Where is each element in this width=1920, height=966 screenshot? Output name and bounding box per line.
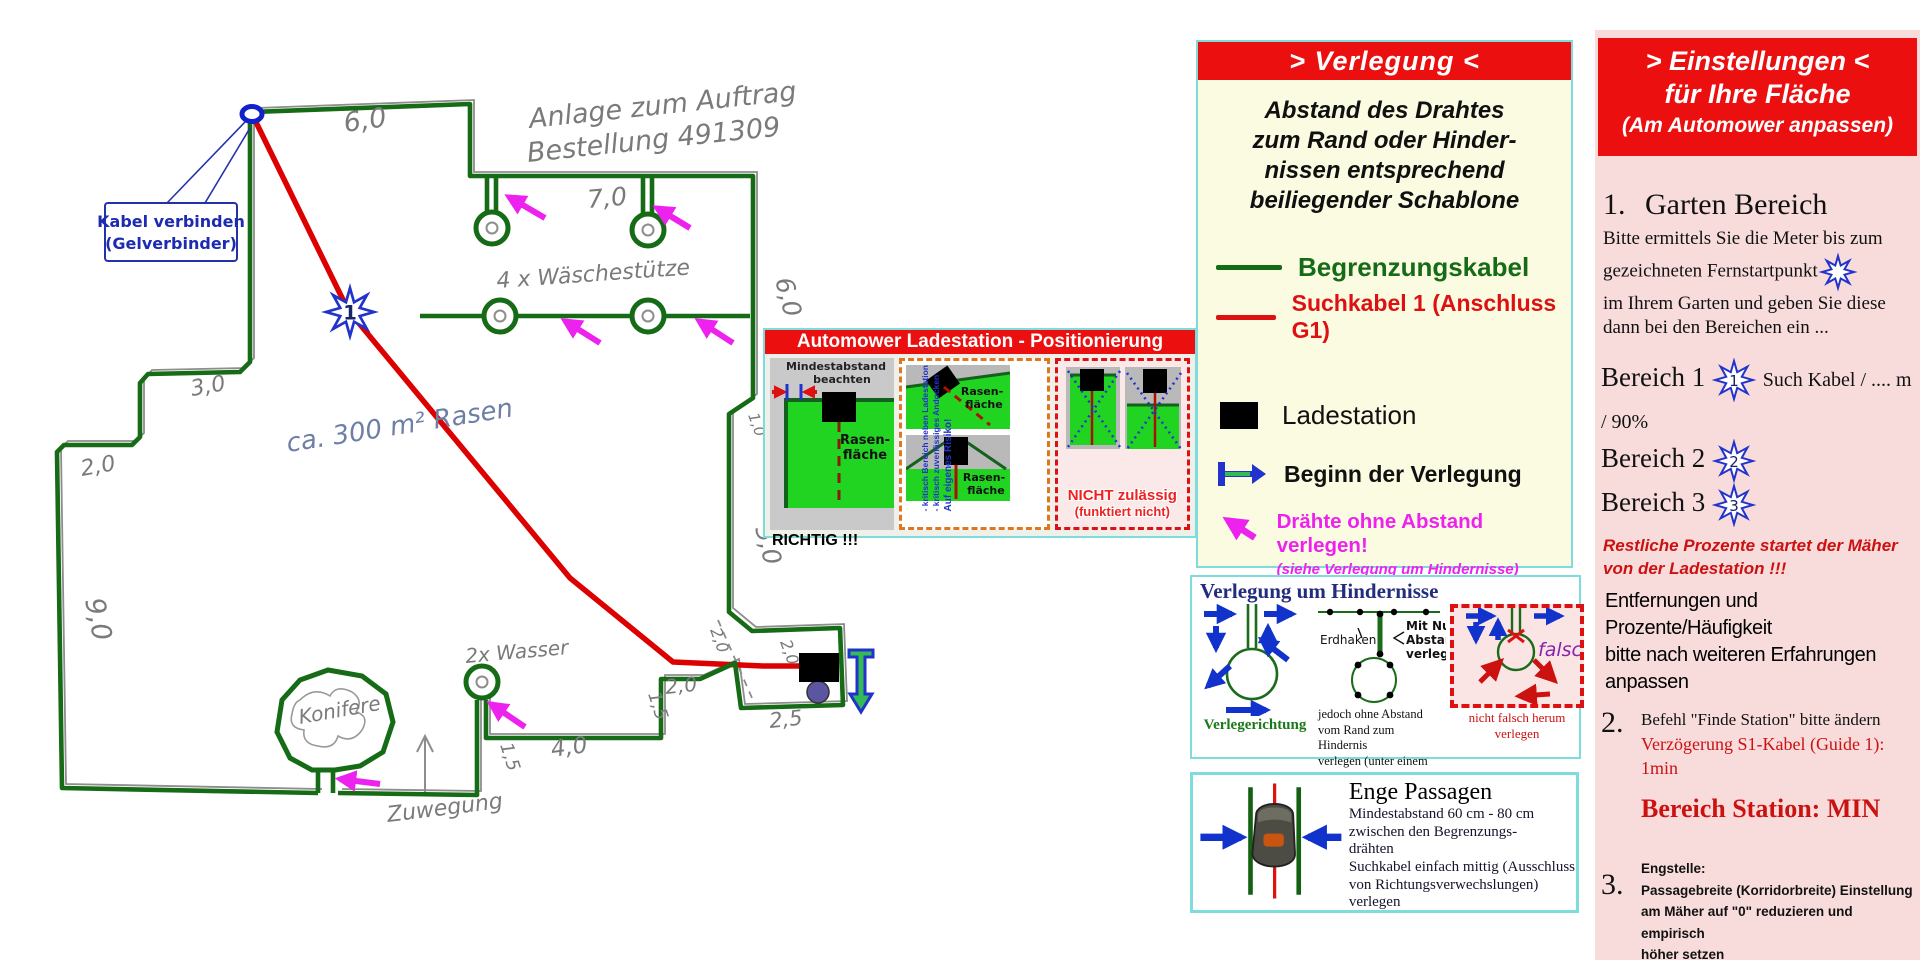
bereich3-label: Bereich 3 xyxy=(1601,487,1705,517)
wrong-caption: nicht falsch herum verlegen xyxy=(1450,710,1584,741)
settings-title-1: > Einstellungen < xyxy=(1598,46,1917,77)
obstacles-panel-title: Verlegung um Hindernisse xyxy=(1200,579,1579,604)
item1-title: Garten Bereich xyxy=(1645,188,1827,221)
legend-nogap-label: Drähte ohne Abstand verlegen! xyxy=(1277,510,1571,558)
m-right-upper: 6,0 xyxy=(769,274,807,320)
item3-number: 3. xyxy=(1601,868,1624,902)
station-knob xyxy=(807,681,829,703)
m-left-side: 9,0 xyxy=(78,595,117,643)
m-left-step-upper: 3,0 xyxy=(189,371,228,402)
obstacle-wrong-figure: falsch nicht falsch herum verlegen xyxy=(1450,604,1584,785)
narrow-passages-panel: Enge Passagen Mindestabstand 60 cm - 80 … xyxy=(1190,772,1579,913)
bereich2-star: 2 xyxy=(1712,439,1756,483)
forbidden-verdict-2: (funktiert nicht) xyxy=(1058,504,1187,519)
narrow-passage-line4: Suchkabel einfach mittig (Ausschluss xyxy=(1349,859,1576,877)
zero-gap-caption-2: vom Rand zum Hindernis xyxy=(1318,723,1446,754)
positioning-panel: Automower Ladestation - Positionierung M… xyxy=(763,328,1197,538)
item3-line1: Engstelle: xyxy=(1641,858,1920,880)
item1-number: 1. xyxy=(1603,188,1626,221)
wrong-caption-2: verlegen xyxy=(1450,726,1584,742)
callout-line2: (Gelverbinder) xyxy=(105,234,237,253)
fernstart-star xyxy=(1818,252,1858,292)
item1-line4: dann bei den Bereichen ein ... xyxy=(1603,316,1886,341)
item2-number: 2. xyxy=(1601,706,1624,740)
intro-line-1: Abstand des Drahtes xyxy=(1198,96,1571,126)
bereich1-star: 1 xyxy=(1712,358,1756,402)
bereich1-row: Bereich 1 1 Such Kabel / .... m / 90% xyxy=(1601,358,1920,439)
settings-title-2: für Ihre Fläche xyxy=(1598,79,1917,110)
forbidden-figure-2 xyxy=(1123,367,1183,453)
adjust-note: Entfernungen und Prozente/Häufigkeit bit… xyxy=(1605,588,1920,696)
positioning-risky-diagrams: Rasen- fläche Rasen- fläche - kritisch B… xyxy=(899,358,1050,530)
note-line2: bitte nach weiteren Erfahrungen anpassen xyxy=(1605,642,1920,696)
erdhaken-label: Erdhaken xyxy=(1320,633,1376,647)
callout-line1: Kabel verbinden xyxy=(97,212,245,231)
obstacle-zero-gap-figure: Erdhaken Mit Null Abstand verlegen jedoc… xyxy=(1318,604,1446,785)
intro-line-4: beiliegender Schablone xyxy=(1198,186,1571,216)
narrow-passage-line2: zwischen den Begrenzungs- xyxy=(1349,824,1576,842)
legend-guide-row: Suchkabel 1 (Anschluss G1) xyxy=(1216,290,1571,344)
automower-installation-sheet: { "plan": { "order_note_line1": "Anlage … xyxy=(0,0,1920,960)
item1-line2: gezeichneten Fernstartpunkt xyxy=(1603,260,1818,281)
note-line1: Entfernungen und Prozente/Häufigkeit xyxy=(1605,588,1920,642)
obstacles-panel: Verlegung um Hindernisse Verlegerichtung xyxy=(1190,575,1581,759)
bereich2-row: Bereich 2 2 xyxy=(1601,439,1920,483)
obstacle-direction-figure: Verlegerichtung xyxy=(1196,604,1314,785)
water-point-loop xyxy=(466,666,498,698)
bereich-list: Bereich 1 1 Such Kabel / .... m / 90% Be… xyxy=(1601,358,1920,527)
narrow-passage-line1: Mindestabstand 60 cm - 80 cm xyxy=(1349,806,1576,824)
forbidden-verdict: NICHT zulässig (funktiert nicht) xyxy=(1058,487,1187,519)
positioning-panel-title: Automower Ladestation - Positionierung xyxy=(765,330,1195,354)
mower-image xyxy=(1252,804,1295,867)
handwritten-notes: Anlage zum Auftrag Bestellung 491309 ca.… xyxy=(284,76,797,828)
north-arrow xyxy=(417,736,433,792)
narrow-passage-title: Enge Passagen xyxy=(1349,779,1576,806)
m-near-station-h: 2,0 xyxy=(664,672,698,699)
no-gap-arrow-icon xyxy=(1216,510,1261,544)
legend-guide-label: Suchkabel 1 (Anschluss G1) xyxy=(1292,290,1571,344)
begin-arrow xyxy=(849,650,873,712)
clothesline-label: 4 x Wäschestütze xyxy=(496,256,691,294)
legend-boundary-row: Begrenzungskabel xyxy=(1216,252,1529,283)
legend-begin-label: Beginn der Verlegung xyxy=(1284,461,1522,488)
bereich2-label: Bereich 2 xyxy=(1601,443,1705,473)
legend-begin-row: Beginn der Verlegung xyxy=(1216,460,1522,488)
charging-station xyxy=(799,653,839,682)
settings-panel: > Einstellungen < für Ihre Fläche (Am Au… xyxy=(1595,30,1920,960)
station-setting: Bereich Station: MIN xyxy=(1641,794,1880,824)
m-top: 6,0 xyxy=(342,102,389,139)
lawn-label-1: Rasen- xyxy=(840,433,890,448)
boundary-line-icon xyxy=(1216,265,1282,270)
start-point-star: 1 xyxy=(326,288,374,336)
m-passage-v1: 1,5 xyxy=(495,740,524,774)
falsch-label: falsch xyxy=(1538,639,1580,661)
correct-verdict: RICHTIG !!! xyxy=(772,532,858,550)
item2-text: Befehl "Finde Station" bitte ändern Verz… xyxy=(1641,709,1920,781)
min-distance-note-2: beachten xyxy=(813,373,871,386)
start-point-number: 1 xyxy=(343,302,357,325)
m-left-step-lower: 2,0 xyxy=(79,451,118,482)
mit-null-1: Mit Null xyxy=(1406,619,1446,633)
area-note: ca. 300 m² Rasen xyxy=(284,394,515,459)
mit-null-2: Abstand xyxy=(1406,633,1446,647)
item3-line2: Passagebreite (Korridorbreite) Einstellu… xyxy=(1641,880,1920,902)
lawn-label-2: fläche xyxy=(843,448,887,463)
settings-title-3: (Am Automower anpassen) xyxy=(1598,114,1917,138)
item3-line3: am Mäher auf "0" reduzieren und empirisc… xyxy=(1641,901,1920,944)
min-distance-note-1: Mindestabstand xyxy=(786,360,886,373)
forbidden-verdict-1: NICHT zulässig xyxy=(1058,487,1187,504)
tree-loop xyxy=(277,670,393,793)
legend-station-row: Ladestation xyxy=(1216,400,1416,431)
bereich3-row: Bereich 3 3 xyxy=(1601,483,1920,527)
m-near-station-r2: 2,0 xyxy=(776,637,803,667)
intro-line-3: nissen entsprechend xyxy=(1198,156,1571,186)
guide-line-icon xyxy=(1216,315,1276,320)
item1-line3: im Ihrem Garten und geben Sie diese xyxy=(1603,292,1886,317)
bereich1-star-number: 1 xyxy=(1729,372,1739,390)
narrow-passage-text: Enge Passagen Mindestabstand 60 cm - 80 … xyxy=(1349,775,1576,912)
cable-connect-callout: Kabel verbinden (Gelverbinder) xyxy=(97,107,262,262)
bereich3-star: 3 xyxy=(1712,483,1756,527)
item2-line1: Befehl "Finde Station" bitte ändern xyxy=(1641,709,1920,732)
bereich3-star-number: 3 xyxy=(1729,497,1739,515)
connect-point xyxy=(242,107,262,122)
laying-legend-panel: > Verlegung < Abstand des Drahtes zum Ra… xyxy=(1196,40,1573,568)
settings-panel-header: > Einstellungen < für Ihre Fläche (Am Au… xyxy=(1598,38,1917,156)
bereich1-label: Bereich 1 xyxy=(1601,362,1705,392)
laying-intro: Abstand des Drahtes zum Rand oder Hinder… xyxy=(1198,96,1571,216)
station-icon xyxy=(1220,402,1258,429)
guide-cable xyxy=(252,114,802,666)
risk-line-1: Auf eigenes Risiko! xyxy=(943,365,955,511)
water-label: 2x Wasser xyxy=(464,635,571,668)
risk-line-3: - kritisch Bereich neben Ladestation xyxy=(921,365,931,511)
legend-nogap-row: Drähte ohne Abstand verlegen! (siehe Ver… xyxy=(1216,510,1571,578)
item3-text: Engstelle: Passagebreite (Korridorbreite… xyxy=(1641,858,1920,966)
warning-line1: Restliche Prozente startet der Mäher xyxy=(1603,535,1898,558)
intro-line-2: zum Rand oder Hinder- xyxy=(1198,126,1571,156)
wrong-caption-1: nicht falsch herum xyxy=(1450,710,1584,726)
mit-null-3: verlegen xyxy=(1406,647,1446,661)
risk-warning-text: - kritisch Bereich neben Ladestation - k… xyxy=(921,365,1045,511)
forbidden-figure-1 xyxy=(1064,367,1124,453)
m-passage-h: 4,0 xyxy=(549,732,589,763)
positioning-forbidden-diagrams: NICHT zulässig (funktiert nicht) xyxy=(1055,358,1190,530)
narrow-passage-line3: drähten xyxy=(1349,841,1576,859)
risk-line-2: - kritisch zuverlässiges Andocken xyxy=(932,365,942,511)
correct-placement-figure: Mindestabstand beachten Rasen- fläche xyxy=(770,358,894,508)
legend-boundary-label: Begrenzungskabel xyxy=(1298,252,1529,283)
item1-heading: 1. Garten Bereich xyxy=(1603,188,1827,222)
narrow-passage-line5: von Richtungsverwechslungen) verlegen xyxy=(1349,877,1576,912)
legend-station-label: Ladestation xyxy=(1282,400,1416,431)
restliche-warning: Restliche Prozente startet der Mäher von… xyxy=(1603,535,1898,581)
bereich2-star-number: 2 xyxy=(1729,453,1739,471)
m-station-width: 2,5 xyxy=(768,706,804,733)
warning-line2: von der Ladestation !!! xyxy=(1603,558,1898,581)
m-clothesline-top: 7,0 xyxy=(586,182,628,214)
item1-line1: Bitte ermittels Sie die Meter bis zum xyxy=(1603,227,1886,252)
direction-caption: Verlegerichtung xyxy=(1196,717,1314,734)
narrow-passage-figure xyxy=(1193,775,1349,907)
zero-gap-caption-1: jedoch ohne Abstand xyxy=(1318,707,1446,723)
begin-arrow-icon xyxy=(1216,460,1268,488)
m-near-station-r1: 2,0 xyxy=(706,625,733,655)
item1-paragraph: Bitte ermittels Sie die Meter bis zum ge… xyxy=(1603,227,1886,341)
positioning-correct-diagram: Mindestabstand beachten Rasen- fläche RI… xyxy=(770,358,894,530)
item2-line2: Verzögerung S1-Kabel (Guide 1): 1min xyxy=(1641,732,1920,781)
laying-panel-title: > Verlegung < xyxy=(1198,42,1571,80)
item3-line4: höher setzen xyxy=(1641,944,1920,966)
